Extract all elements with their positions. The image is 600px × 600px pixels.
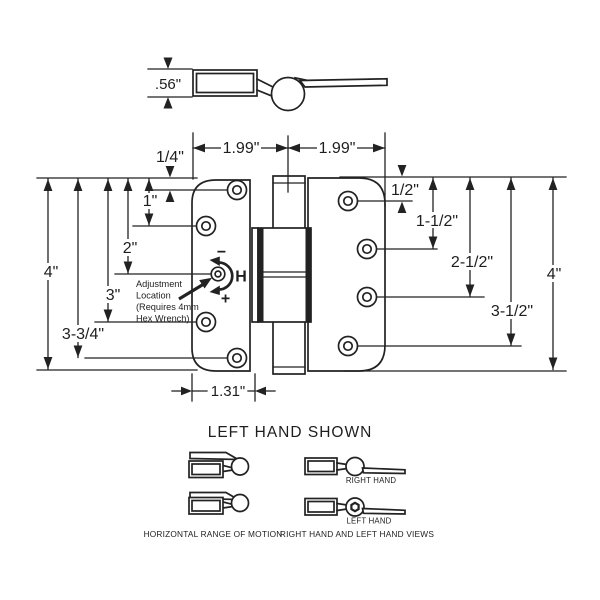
flat-leaf-arm: [300, 79, 387, 87]
screw-hole: [358, 288, 377, 307]
screw-hole: [228, 349, 247, 368]
adjustment-note-line1: Adjustment: [136, 279, 182, 289]
thickness-dim-label: .56": [155, 76, 181, 93]
adjustment-note-line2: Location: [136, 291, 171, 301]
dim-label-three-half: 3-1/2": [491, 303, 533, 320]
dim-label-bottom-offset: 1.31": [211, 383, 246, 400]
range-of-motion-caption: HORIZONTAL RANGE OF MOTION: [144, 529, 283, 539]
drawing-canvas: 1.99" 1.99" 1/4" 1" 2" 3" 3-3/4" 4" 1/2"…: [0, 0, 600, 600]
dim-label-two-half: 2-1/2": [451, 254, 493, 271]
views-caption: RIGHT HAND AND LEFT HAND VIEWS: [280, 529, 434, 539]
screw-hole: [339, 337, 358, 356]
plus-symbol: +: [221, 291, 230, 308]
screw-hole: [228, 181, 247, 200]
dim-label-three: 3": [106, 287, 121, 304]
dim-label-top-right-width: 1.99": [319, 140, 356, 157]
center-knuckle: [258, 228, 311, 322]
right-hand-icon: [305, 458, 405, 476]
screw-hole: [197, 313, 216, 332]
adjustment-note-line3: (Requires 4mm: [136, 302, 199, 312]
dim-label-half: 1/2": [391, 182, 419, 199]
adjustment-screw-hole: [211, 267, 225, 281]
dim-label-one: 1": [143, 193, 158, 210]
range-of-motion-icon-open: [189, 453, 249, 478]
screw-hole: [358, 240, 377, 259]
adjustment-note-line4: Hex Wrench): [136, 314, 189, 324]
dim-label-top-left-width: 1.99": [223, 140, 260, 157]
right-hand-caption: RIGHT HAND: [346, 476, 397, 485]
left-hand-icon: [305, 498, 405, 516]
minus-symbol: −: [217, 244, 226, 261]
hinge-dimension-drawing: 1.99" 1.99" 1/4" 1" 2" 3" 3-3/4" 4" 1/2"…: [0, 0, 600, 600]
dim-label-four-right: 4": [547, 266, 562, 283]
range-of-motion-icon-closed: [189, 493, 249, 515]
dim-label-one-half: 1-1/2": [416, 213, 458, 230]
dim-label-three-three-quarter: 3-3/4": [62, 326, 104, 343]
horizontal-axis-label: H: [235, 269, 247, 286]
leaf-fold-strip: [252, 228, 258, 322]
dim-label-quarter: 1/4": [156, 149, 184, 166]
side-view: .56": [148, 58, 387, 111]
left-hand-caption: LEFT HAND: [347, 517, 392, 526]
screw-hole: [197, 217, 216, 236]
screw-hole: [339, 192, 358, 211]
dim-label-two: 2": [123, 240, 138, 257]
hex-socket-icon: [351, 503, 358, 511]
legend: LEFT HAND SHOWN HORIZONTAL RANGE OF MOTI…: [144, 424, 435, 539]
dim-label-four-left: 4": [44, 264, 59, 281]
legend-title: LEFT HAND SHOWN: [208, 424, 373, 441]
knuckle-circle: [272, 78, 305, 111]
